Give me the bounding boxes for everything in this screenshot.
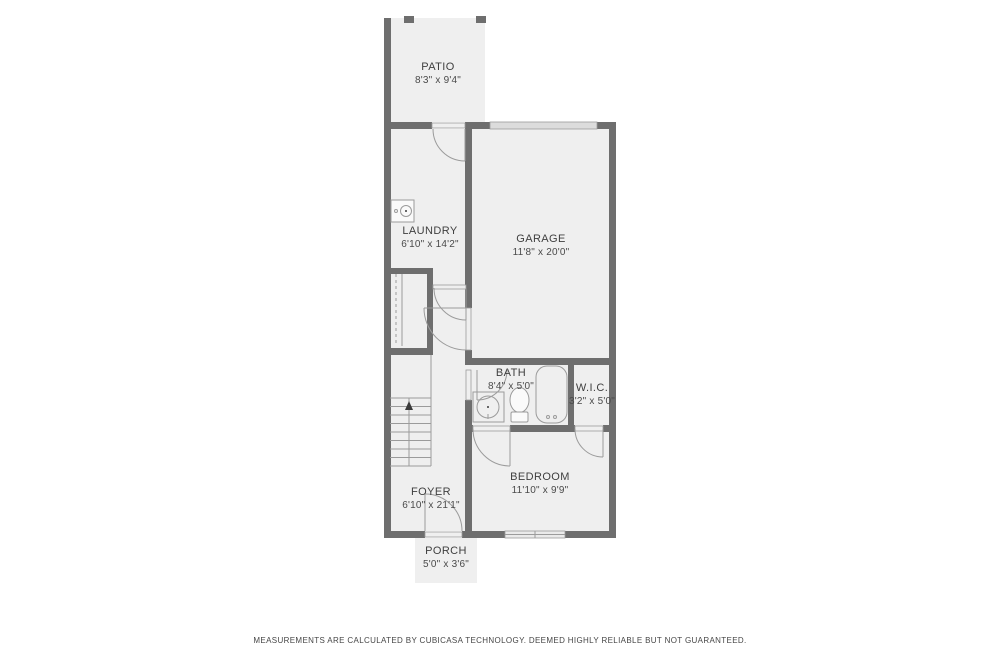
patio-dims: 8'3" x 9'4" bbox=[415, 75, 461, 86]
wall-right bbox=[609, 122, 616, 538]
wall-bottom-3 bbox=[565, 531, 616, 538]
front-door-threshold bbox=[425, 532, 462, 537]
foyer-dims: 6'10" x 21'1" bbox=[402, 500, 459, 511]
porch-dims: 5'0" x 3'6" bbox=[423, 559, 469, 570]
wall-left bbox=[384, 18, 391, 538]
bedroom-door-threshold bbox=[473, 426, 510, 431]
bath-door-threshold bbox=[466, 370, 471, 400]
patio-post-right bbox=[476, 16, 486, 23]
room-label-garage: GARAGE 11'8" x 20'0" bbox=[513, 233, 570, 258]
room-label-bath: BATH 8'4" x 5'0" bbox=[488, 367, 534, 392]
garage-dims: 11'8" x 20'0" bbox=[513, 247, 570, 258]
bedroom-window bbox=[505, 531, 565, 538]
wall-spine-lower bbox=[465, 400, 472, 538]
laundry-dims: 6'10" x 14'2" bbox=[401, 239, 458, 250]
patio-name: PATIO bbox=[415, 61, 461, 73]
bath-name: BATH bbox=[488, 367, 534, 379]
wall-garage-bottom bbox=[465, 358, 616, 365]
bedroom-name: BEDROOM bbox=[510, 471, 570, 483]
room-label-bedroom: BEDROOM 11'10" x 9'9" bbox=[510, 471, 570, 496]
garage-entry-threshold bbox=[466, 308, 471, 350]
wic-dims: 3'2" x 5'0" bbox=[569, 396, 615, 407]
wall-top-1 bbox=[384, 122, 432, 129]
floorplan-page: PATIO 8'3" x 9'4" LAUNDRY 6'10" x 14'2" … bbox=[0, 0, 1000, 666]
room-label-patio: PATIO 8'3" x 9'4" bbox=[415, 61, 461, 86]
wall-spine-upper bbox=[465, 122, 472, 308]
patio-post-left bbox=[404, 16, 414, 23]
room-label-laundry: LAUNDRY 6'10" x 14'2" bbox=[401, 225, 458, 250]
laundry-name: LAUNDRY bbox=[401, 225, 458, 237]
wic-door-threshold bbox=[575, 426, 603, 431]
wall-bedroom-top-1 bbox=[465, 425, 473, 432]
main-floor bbox=[391, 129, 609, 531]
floorplan-drawing bbox=[0, 0, 1000, 666]
bath-dims: 8'4" x 5'0" bbox=[488, 381, 534, 392]
wall-closet-right bbox=[427, 268, 433, 355]
wall-bedroom-top-3 bbox=[603, 425, 616, 432]
hall-threshold bbox=[433, 285, 466, 289]
wall-bottom-1 bbox=[384, 531, 425, 538]
patio-door-threshold bbox=[432, 123, 465, 128]
garage-name: GARAGE bbox=[513, 233, 570, 245]
wall-closet-top bbox=[384, 268, 433, 274]
measurement-disclaimer: MEASUREMENTS ARE CALCULATED BY CUBICASA … bbox=[253, 636, 746, 645]
toilet-icon bbox=[510, 388, 529, 423]
wall-bedroom-top-2 bbox=[510, 425, 575, 432]
garage-door bbox=[490, 122, 597, 129]
foyer-name: FOYER bbox=[402, 486, 459, 498]
washer-icon bbox=[391, 200, 414, 222]
wall-closet-bottom bbox=[384, 348, 430, 355]
bedroom-dims: 11'10" x 9'9" bbox=[510, 485, 570, 496]
room-label-porch: PORCH 5'0" x 3'6" bbox=[423, 545, 469, 570]
wic-name: W.I.C. bbox=[569, 382, 615, 394]
room-label-wic: W.I.C. 3'2" x 5'0" bbox=[569, 382, 615, 407]
porch-name: PORCH bbox=[423, 545, 469, 557]
room-label-foyer: FOYER 6'10" x 21'1" bbox=[402, 486, 459, 511]
